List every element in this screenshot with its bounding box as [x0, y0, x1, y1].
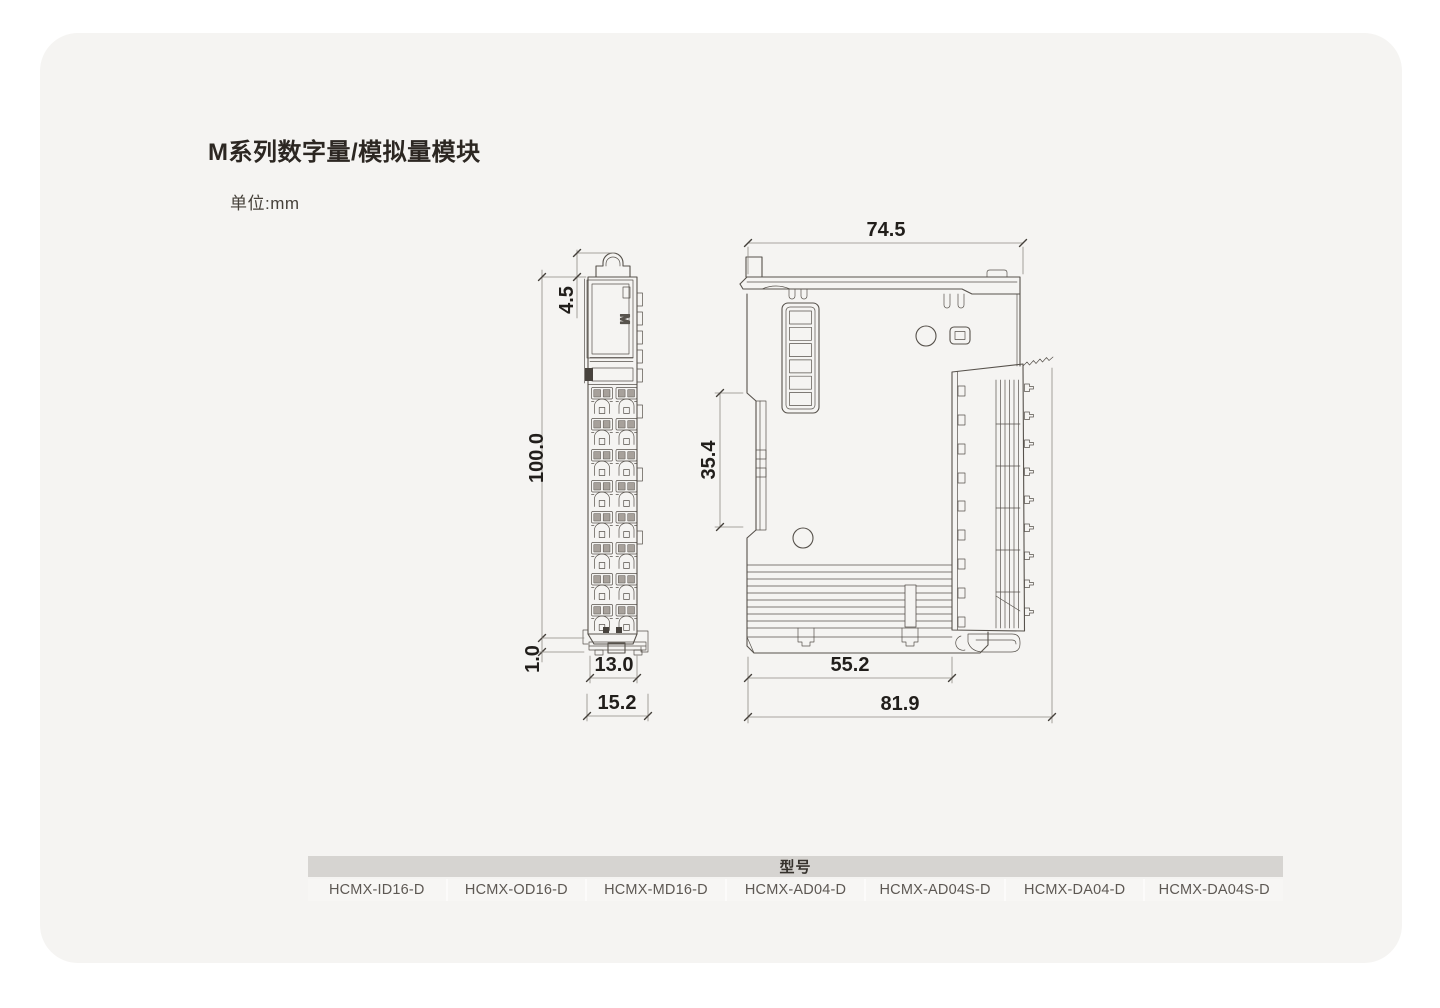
screw-hole-bottom: [793, 528, 813, 548]
din-rail-clip: [756, 401, 766, 530]
label-window: M: [587, 280, 633, 362]
din-clip-top: [596, 253, 630, 277]
door-teeth: [1023, 357, 1053, 366]
door-hook-tabs: [1025, 384, 1034, 616]
door-slats: [996, 380, 1020, 628]
screw-hole-top: [916, 326, 936, 346]
latch-band: [585, 368, 637, 385]
side-view-drawing: 74.5 35.4 55.2 81.9: [690, 200, 1110, 740]
model-cell: HCMX-AD04-D: [725, 879, 865, 901]
model-cell: HCMX-AD04S-D: [864, 879, 1004, 901]
dim-clip-height: 4.5: [556, 286, 578, 314]
model-table: 型号 HCMX-ID16-D HCMX-OD16-D HCMX-MD16-D H…: [308, 856, 1283, 901]
bottom-foot: [583, 627, 648, 655]
front-module-outline: M: [583, 253, 648, 655]
dim-terminal-width: 13.0: [595, 654, 634, 676]
door-holes: [958, 386, 965, 627]
dim-body-height: 100.0: [526, 433, 548, 483]
front-view-drawing: M: [520, 200, 670, 740]
unit-label: 单位:mm: [230, 189, 300, 214]
model-table-row: HCMX-ID16-D HCMX-OD16-D HCMX-MD16-D HCMX…: [308, 879, 1283, 901]
heat-ribs: [747, 565, 952, 646]
dim-lower-depth: 55.2: [831, 654, 870, 676]
page-background: { "page": { "title": "M系列数字量/模拟量模块", "un…: [0, 0, 1440, 1008]
vent-slots: [782, 303, 819, 413]
terminal-block: [592, 388, 638, 631]
dim-overall-width: 15.2: [598, 692, 637, 714]
dim-foot-height: 1.0: [522, 645, 544, 673]
side-tabs: [637, 293, 643, 544]
model-cell: HCMX-OD16-D: [446, 879, 586, 901]
model-cell: HCMX-DA04S-D: [1143, 879, 1283, 901]
dim-overall-depth-bottom: 81.9: [881, 693, 920, 715]
dim-overall-depth-top: 74.5: [867, 219, 906, 241]
wiring-door: [952, 357, 1053, 631]
dim-din-rail-height: 35.4: [698, 440, 720, 480]
model-cell: HCMX-MD16-D: [585, 879, 725, 901]
model-cell: HCMX-ID16-D: [308, 879, 446, 901]
top-connector: [746, 257, 762, 277]
model-table-header: 型号: [308, 856, 1283, 877]
page-title: M系列数字量/模拟量模块: [208, 132, 481, 167]
side-bottom-foot: [747, 632, 1020, 653]
connector-detail: [950, 327, 970, 344]
side-module-outline: [740, 257, 1053, 653]
brand-logo: M: [617, 314, 632, 325]
model-cell: HCMX-DA04-D: [1004, 879, 1144, 901]
